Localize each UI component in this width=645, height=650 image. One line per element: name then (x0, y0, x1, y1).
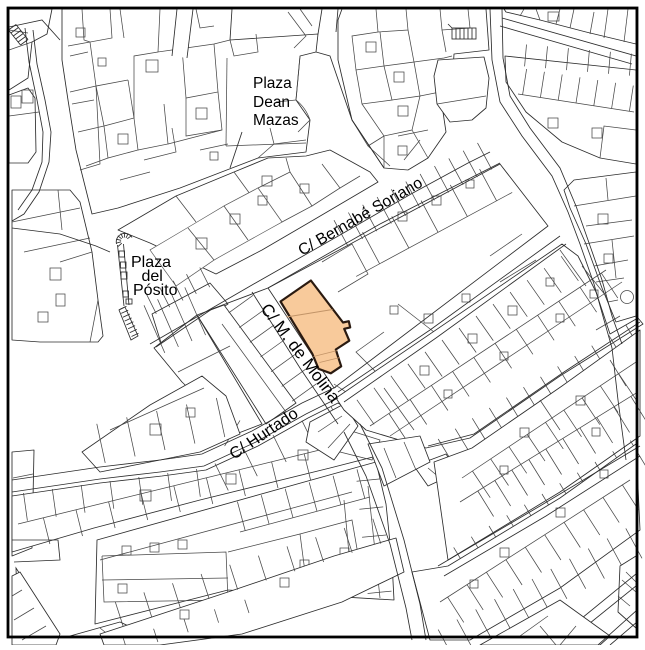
svg-text:Plaza: Plaza (253, 75, 292, 92)
svg-text:Mazas: Mazas (253, 112, 299, 129)
svg-text:Pósito: Pósito (133, 282, 178, 299)
svg-text:Dean: Dean (253, 94, 290, 111)
